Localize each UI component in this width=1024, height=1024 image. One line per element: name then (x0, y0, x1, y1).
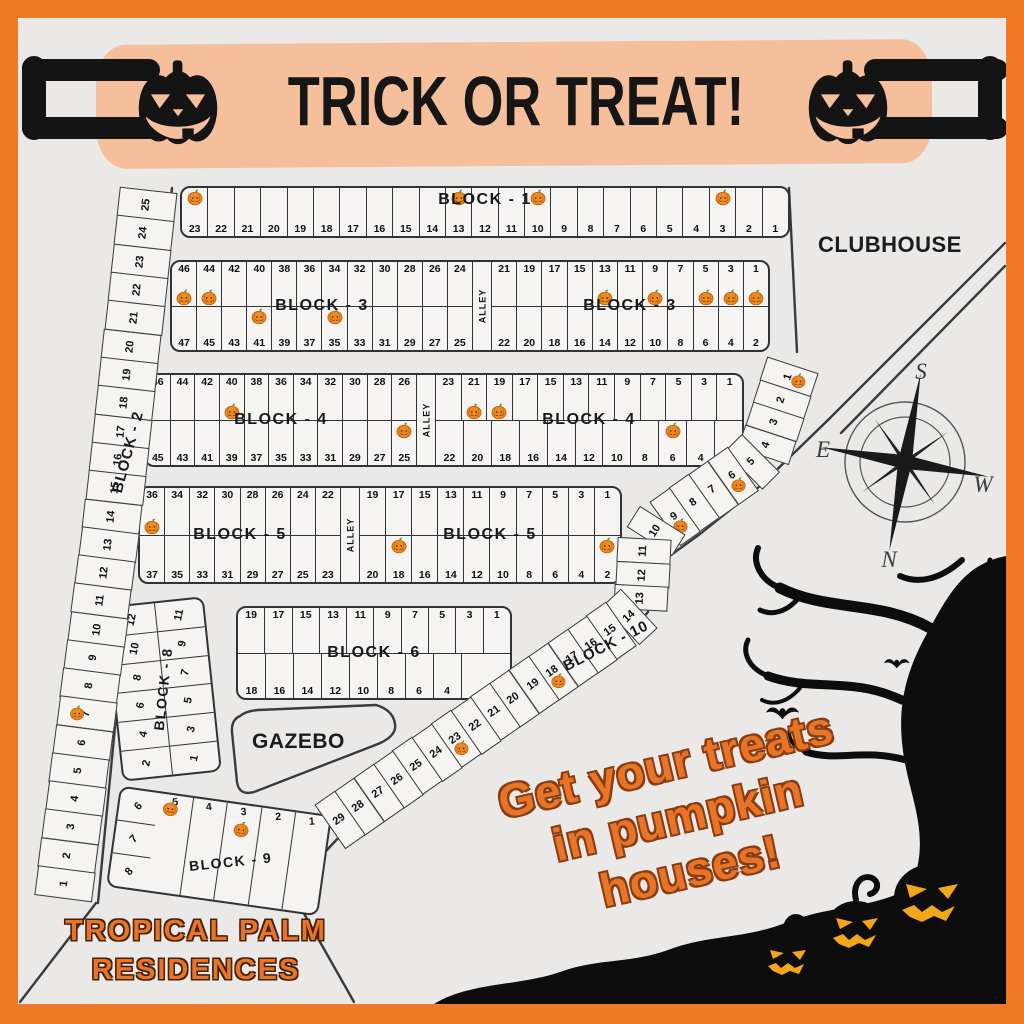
pumpkin-house-icon (390, 536, 408, 554)
lot-number: 25 (409, 758, 425, 774)
lot-cell: 2 (743, 307, 768, 351)
banner-title: TRICK OR TREAT! (251, 41, 781, 163)
frame-border (0, 0, 18, 1024)
lot-cell: 41 (194, 421, 219, 466)
block-section: 2321191715131197531222018161412108642BLO… (436, 375, 742, 465)
lot-number: 6 (670, 451, 676, 466)
lot-number: 14 (302, 684, 314, 699)
lot-number: 12 (479, 222, 491, 237)
pumpkin-house-icon (714, 188, 732, 206)
pumpkin-house-icon (730, 476, 747, 493)
lot-number: 9 (88, 654, 100, 661)
lot-number: 29 (404, 336, 416, 351)
lot-number: 13 (103, 538, 115, 552)
lot-number: 4 (137, 730, 150, 738)
lot-number: 9 (624, 375, 630, 390)
lot-number: 6 (552, 568, 558, 583)
lot-number: 17 (549, 262, 561, 277)
lot-cell: 1 (716, 375, 742, 420)
pumpkin-house-icon (186, 188, 204, 206)
lot-cell: 21 (461, 375, 487, 420)
lot-number: 1 (604, 488, 610, 503)
lot-pumpkin-slot (722, 288, 740, 306)
lot-cell: 1 (594, 488, 620, 535)
lot-number: 19 (523, 262, 535, 277)
lot-number: 27 (429, 336, 441, 351)
lot-number: 7 (412, 608, 418, 623)
lot-cell: 2 (121, 746, 171, 780)
lot-number: 29 (349, 451, 361, 466)
lot-number: 40 (253, 262, 265, 277)
banner-pumpkin-icon (130, 58, 226, 150)
lot-cell: 6 (117, 788, 159, 825)
lot-cell: 35 (164, 536, 189, 583)
block-label: BLOCK - 3 (583, 297, 677, 315)
lot-cell: 2 (735, 188, 761, 236)
lot-number: 18 (499, 451, 511, 466)
lot-number: 8 (388, 684, 394, 699)
lot-number: 17 (519, 375, 531, 390)
lot-cell: 46 (172, 262, 196, 306)
lot-number: 34 (300, 375, 312, 390)
lot-cell: 17 (264, 608, 291, 653)
lot-number: 6 (77, 739, 89, 746)
lot-number: 8 (85, 682, 97, 689)
lot-pumpkin-slot (231, 818, 251, 838)
lot-cell: 6 (693, 307, 718, 351)
lot-number: 35 (275, 451, 287, 466)
lot-number: 24 (297, 488, 309, 503)
lot-number: 20 (125, 340, 137, 353)
lot-number: 22 (322, 488, 334, 503)
lot-cell: 3 (568, 488, 594, 535)
lot-pumpkin-slot (309, 829, 312, 847)
lot-pumpkin-slot (186, 188, 204, 206)
pumpkin-house-icon-wrap (68, 705, 85, 722)
lot-cell: 7 (603, 188, 629, 236)
lot-cell: 19 (287, 188, 313, 236)
frame-border (0, 1004, 1024, 1024)
lot-number: 32 (196, 488, 208, 503)
lot-number: 19 (245, 608, 257, 623)
lot-number: 7 (179, 668, 192, 676)
lot-cell: 27 (367, 421, 392, 466)
lot-number: 12 (583, 451, 595, 466)
lot-cell: 3 (718, 262, 743, 306)
tree-branch (956, 560, 990, 594)
lot-pumpkin-slot (490, 402, 508, 420)
lot-number: 12 (624, 336, 636, 351)
pumpkin-house-icon (175, 288, 193, 306)
lot-cell: 3 (455, 608, 482, 653)
pumpkin-house-icon (664, 421, 682, 439)
lot-number: 32 (354, 262, 366, 277)
lot-number: 22 (132, 283, 144, 296)
alley-label: ALLEY (345, 518, 355, 553)
lot-cell: 26 (391, 375, 416, 420)
lot-number: 28 (351, 799, 367, 815)
tree-branch (760, 596, 800, 613)
lot-cell: 42 (194, 375, 219, 420)
lot-number: 28 (404, 262, 416, 277)
lot-number: 3 (467, 608, 473, 623)
lot-number: 8 (123, 865, 136, 878)
lot-cell: 22 (207, 188, 233, 236)
lot-number: 15 (300, 608, 312, 623)
lot-cell: 24 (447, 262, 472, 306)
lot-number: 37 (146, 568, 158, 583)
lot-cell: 25 (391, 421, 416, 466)
lot-cell: 19 (486, 375, 512, 420)
pumpkin-house-icon (143, 517, 161, 535)
lot-number: 8 (642, 451, 648, 466)
lot-number: 12 (637, 568, 649, 581)
lot-cell: 21 (492, 262, 516, 306)
lot-number: 4 (728, 336, 734, 351)
lot-cell: 18 (313, 188, 339, 236)
pumpkin-house-icon-wrap (730, 476, 747, 493)
lot-number: 30 (349, 375, 361, 390)
alley: ALLEY (340, 488, 360, 582)
lot-number: 19 (294, 222, 306, 237)
lot-pumpkin-slot (465, 402, 483, 420)
block-3: 4644424038363432302826244745434139373533… (170, 260, 770, 352)
lot-number: 35 (171, 568, 183, 583)
lot-number: 7 (708, 483, 719, 496)
lot-number: 37 (304, 336, 316, 351)
block-label: BLOCK - 3 (275, 297, 369, 315)
lot-number: 20 (506, 691, 522, 707)
lot-number: 5 (74, 767, 86, 774)
lot-pumpkin-slot (175, 288, 193, 306)
lot-number: 25 (141, 198, 153, 211)
lot-number: 28 (247, 488, 259, 503)
lot-number: 14 (426, 222, 438, 237)
road-diagonal-1 (828, 243, 1005, 420)
lot-number: 1 (188, 754, 201, 762)
lot-number: 34 (329, 262, 341, 277)
compass-left-letter: E (816, 437, 830, 463)
lot-cell: 41 (246, 307, 271, 351)
lot-cell: 23 (182, 188, 207, 236)
lot-cell: 6 (658, 421, 686, 466)
lot-cell: 22 (492, 307, 516, 351)
lot-number: 9 (561, 222, 567, 237)
lot-cell: 20 (260, 188, 286, 236)
lot-number: 13 (445, 488, 457, 503)
lot-number: 3 (728, 262, 734, 277)
compass-bottom-letter: N (881, 547, 896, 573)
lot-number: 25 (398, 451, 410, 466)
lot-number: 10 (611, 451, 623, 466)
lot-cell: 4 (682, 188, 708, 236)
lot-number: 5 (676, 375, 682, 390)
road-diagonal-2 (841, 266, 1005, 433)
lot-number: 5 (182, 697, 195, 705)
lot-number: 2 (776, 395, 788, 404)
lot-cell: 18 (541, 307, 566, 351)
lot-number: 2 (63, 852, 75, 859)
lot-cell: 20 (463, 421, 491, 466)
lot-number: 3 (240, 805, 247, 820)
lot-cell: 6 (630, 188, 656, 236)
lot-number: 16 (574, 336, 586, 351)
lot-number: 5 (746, 456, 758, 468)
lot-number: 1 (727, 375, 733, 390)
lot-number: 26 (398, 375, 410, 390)
lot-pumpkin-slot (274, 824, 277, 842)
lot-number: 13 (636, 592, 648, 605)
lot-number: 6 (703, 336, 709, 351)
lot-number: 1 (59, 880, 71, 887)
lot-number: 4 (70, 795, 82, 802)
lot-number: 11 (506, 222, 517, 237)
lot-number: 35 (329, 336, 341, 351)
lot-number: 4 (693, 222, 699, 237)
lot-number: 1 (753, 262, 759, 277)
lot-cell: 4 (718, 307, 743, 351)
lot-number: 24 (454, 262, 466, 277)
lot-number: 15 (545, 375, 557, 390)
tree-branch (900, 560, 962, 580)
lot-number: 6 (640, 222, 646, 237)
lot-number: 29 (332, 812, 348, 828)
lot-cell: 3 (691, 375, 717, 420)
lot-number: 6 (134, 702, 147, 710)
lot-number: 47 (178, 336, 190, 351)
lot-number: 23 (322, 568, 334, 583)
pumpkin-house-icon (395, 421, 413, 439)
pumpkin-house-icon (160, 798, 180, 818)
lot-number: 45 (203, 336, 215, 351)
lot-number: 8 (677, 336, 683, 351)
lot-number: 10 (127, 641, 141, 655)
lot-number: 8 (526, 568, 532, 583)
tree-branch (780, 588, 930, 628)
lot-number: 19 (494, 375, 506, 390)
pumpkin-house-icon-wrap (454, 739, 471, 756)
lot-number: 7 (677, 262, 683, 277)
lot-number: 39 (279, 336, 291, 351)
alley-label: ALLEY (477, 289, 487, 324)
lot-cell: 5 (665, 375, 691, 420)
pumpkin-house-icon (697, 288, 715, 306)
bat-icon (884, 659, 910, 668)
lot-number: 40 (226, 375, 238, 390)
lot-number: 46 (178, 262, 190, 277)
lot-number: 22 (467, 718, 483, 734)
lot-cell: 22 (315, 488, 340, 535)
pumpkin-house-icon (551, 672, 568, 689)
lot-cell: 18 (385, 536, 411, 583)
lot-number: 10 (92, 623, 104, 637)
lot-number: 3 (701, 375, 707, 390)
lot-number: 42 (228, 262, 240, 277)
block-section: 4644424038363432302826454341393735333129… (146, 375, 416, 465)
lot-number: 5 (667, 222, 673, 237)
lot-cell: 7 (113, 820, 155, 858)
lot-cell: 1 (743, 262, 768, 306)
lot-number: 22 (444, 451, 456, 466)
lot-number: 31 (222, 568, 234, 583)
lot-number: 15 (400, 222, 412, 237)
lot-number: 11 (172, 608, 186, 622)
lot-number: 33 (354, 336, 366, 351)
lot-number: 5 (703, 262, 709, 277)
lot-cell: 18 (491, 421, 519, 466)
pumpkin-house-icon (68, 705, 85, 722)
lot-number: 5 (552, 488, 558, 503)
lot-cell: 23 (436, 375, 461, 420)
lot-number: 3 (578, 488, 584, 503)
lot-number: 21 (498, 262, 510, 277)
lot-cell: 14 (293, 654, 321, 699)
pumpkin-house-icon (250, 307, 268, 325)
lot-number: 20 (472, 451, 484, 466)
lot-cell: 16 (411, 536, 437, 583)
lot-cell: 19 (238, 608, 264, 653)
lot-cell: 45 (196, 307, 221, 351)
lot-number: 4 (206, 800, 213, 815)
pumpkin-house-icon (722, 288, 740, 306)
lot-number: 27 (272, 568, 284, 583)
lot-number: 3 (185, 725, 198, 733)
lot-number: 17 (273, 608, 285, 623)
lot-number: 34 (171, 488, 183, 503)
lot-number: 4 (761, 440, 773, 449)
lot-number: 11 (624, 262, 635, 277)
lot-number: 9 (500, 488, 506, 503)
lot-cell: 28 (367, 375, 392, 420)
residence-name: TROPICAL PALM RESIDENCES (36, 912, 356, 990)
gazebo-label: GAZEBO (252, 730, 345, 754)
lot-number: 10 (649, 336, 661, 351)
block-9-pumpkin (160, 798, 180, 818)
lot-number: 7 (650, 375, 656, 390)
lot-number: 38 (279, 262, 291, 277)
lot-number: 23 (135, 255, 147, 268)
lot-number: 37 (251, 451, 263, 466)
lot-cell: 27 (422, 307, 447, 351)
lot-number: 17 (393, 488, 405, 503)
lot-number: 44 (203, 262, 215, 277)
lot-cell: 17 (512, 375, 538, 420)
lot-number: 2 (753, 336, 759, 351)
lot-number: 9 (176, 639, 189, 647)
lot-number: 31 (379, 336, 391, 351)
lot-number: 18 (549, 336, 561, 351)
lot-cell: 20 (516, 307, 541, 351)
lot-cell: 30 (372, 262, 397, 306)
lot-number: 14 (555, 451, 567, 466)
lot-number: 16 (274, 684, 286, 699)
block-section: 36343230282624223735333129272523BLOCK - … (140, 488, 340, 582)
lot-number: 6 (416, 684, 422, 699)
lot-number: 38 (251, 375, 263, 390)
compass-rose (806, 359, 1005, 566)
lot-number: 43 (228, 336, 240, 351)
lot-number: 3 (720, 222, 726, 237)
lot-number: 19 (122, 368, 134, 381)
lot-cell: 19 (516, 262, 541, 306)
lot-cell: 1 (762, 188, 788, 236)
compass-top-letter: S (915, 359, 927, 385)
block-5: 36343230282624223735333129272523BLOCK - … (138, 486, 622, 584)
lot-number: 16 (419, 568, 431, 583)
lot-cell: 29 (397, 307, 422, 351)
lot-cell: 7 (640, 375, 666, 420)
banner-pumpkin-icon (800, 58, 896, 150)
lot-number: 16 (374, 222, 386, 237)
lot-cell: 15 (392, 188, 418, 236)
lot-cell: 4 (568, 536, 594, 583)
lot-number: 15 (574, 262, 586, 277)
lot-number: 14 (106, 510, 118, 523)
lot-number: 33 (196, 568, 208, 583)
lot-cell: 20 (360, 536, 385, 583)
lot-number: 36 (275, 375, 287, 390)
lot-number: 21 (487, 704, 503, 720)
lot-number: 41 (253, 336, 265, 351)
frame-border (1006, 0, 1024, 1024)
lot-cell: 42 (221, 262, 246, 306)
lot-cell: 40 (246, 262, 271, 306)
lot-number: 10 (532, 222, 544, 237)
block-section: 2322212019181716151413121110987654321BLO… (182, 188, 788, 236)
clubhouse-label: CLUBHOUSE (818, 232, 962, 258)
block-section: 4644424038363432302826244745434139373533… (172, 262, 472, 350)
alley: ALLEY (416, 375, 436, 465)
lot-cell: 21 (234, 188, 260, 236)
lot-number: 8 (588, 222, 594, 237)
residence-name-line: TROPICAL PALM (36, 912, 356, 951)
lot-number: 18 (119, 397, 131, 410)
lot-number: 15 (419, 488, 431, 503)
lot-number: 25 (297, 568, 309, 583)
lot-cell: 44 (196, 262, 221, 306)
lot-number: 13 (570, 375, 582, 390)
lot-cell: 17 (541, 262, 566, 306)
lot-number: 1 (772, 222, 778, 237)
lot-number: 14 (445, 568, 457, 583)
lot-number: 23 (442, 375, 454, 390)
block-label: BLOCK - 5 (193, 526, 287, 544)
lot-number: 16 (527, 451, 539, 466)
lot-cell: 5 (693, 262, 718, 306)
lot-cell: 1 (483, 608, 510, 653)
lot-cell: 18 (238, 654, 265, 699)
lot-cell: 9 (550, 188, 576, 236)
lot-number: 11 (95, 595, 107, 608)
lot-cell: 26 (422, 262, 447, 306)
lot-number: 3 (66, 824, 78, 831)
lot-cell: 37 (140, 536, 164, 583)
pumpkin-house-icon (231, 818, 251, 838)
lot-cell: 44 (170, 375, 195, 420)
lot-number: 41 (201, 451, 213, 466)
lot-cell: 16 (265, 654, 293, 699)
lot-number: 2 (746, 222, 752, 237)
lot-number: 31 (324, 451, 336, 466)
lot-number: 10 (357, 684, 369, 699)
lot-pumpkin-slot (664, 421, 682, 439)
lot-number: 4 (578, 568, 584, 583)
lot-number: 2 (140, 759, 153, 767)
tree-branch (756, 548, 780, 588)
block-label: BLOCK - 1 (438, 191, 532, 209)
lot-cell: 5 (656, 188, 682, 236)
block-2-lot-cell: 1 (34, 865, 95, 903)
